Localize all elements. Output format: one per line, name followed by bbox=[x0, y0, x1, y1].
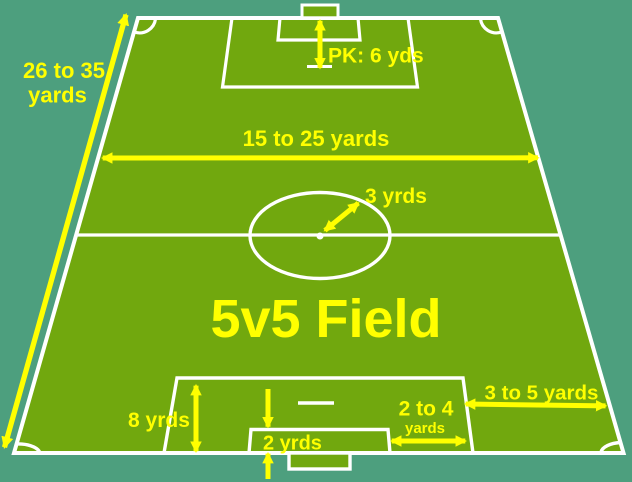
svg-text:yards: yards bbox=[28, 83, 87, 108]
svg-text:yards: yards bbox=[405, 420, 445, 437]
svg-text:3 to 5 yards: 3 to 5 yards bbox=[485, 382, 599, 405]
svg-text:2 to 4: 2 to 4 bbox=[399, 398, 454, 421]
svg-text:3 yrds: 3 yrds bbox=[365, 185, 427, 208]
svg-text:15 to 25 yards: 15 to 25 yards bbox=[243, 126, 390, 151]
svg-text:26 to 35: 26 to 35 bbox=[23, 58, 105, 83]
svg-text:8 yrds: 8 yrds bbox=[128, 409, 190, 432]
svg-text:PK: 6 yds: PK: 6 yds bbox=[328, 45, 424, 68]
svg-text:2 yrds: 2 yrds bbox=[263, 433, 322, 455]
svg-text:5v5 Field: 5v5 Field bbox=[210, 289, 441, 349]
